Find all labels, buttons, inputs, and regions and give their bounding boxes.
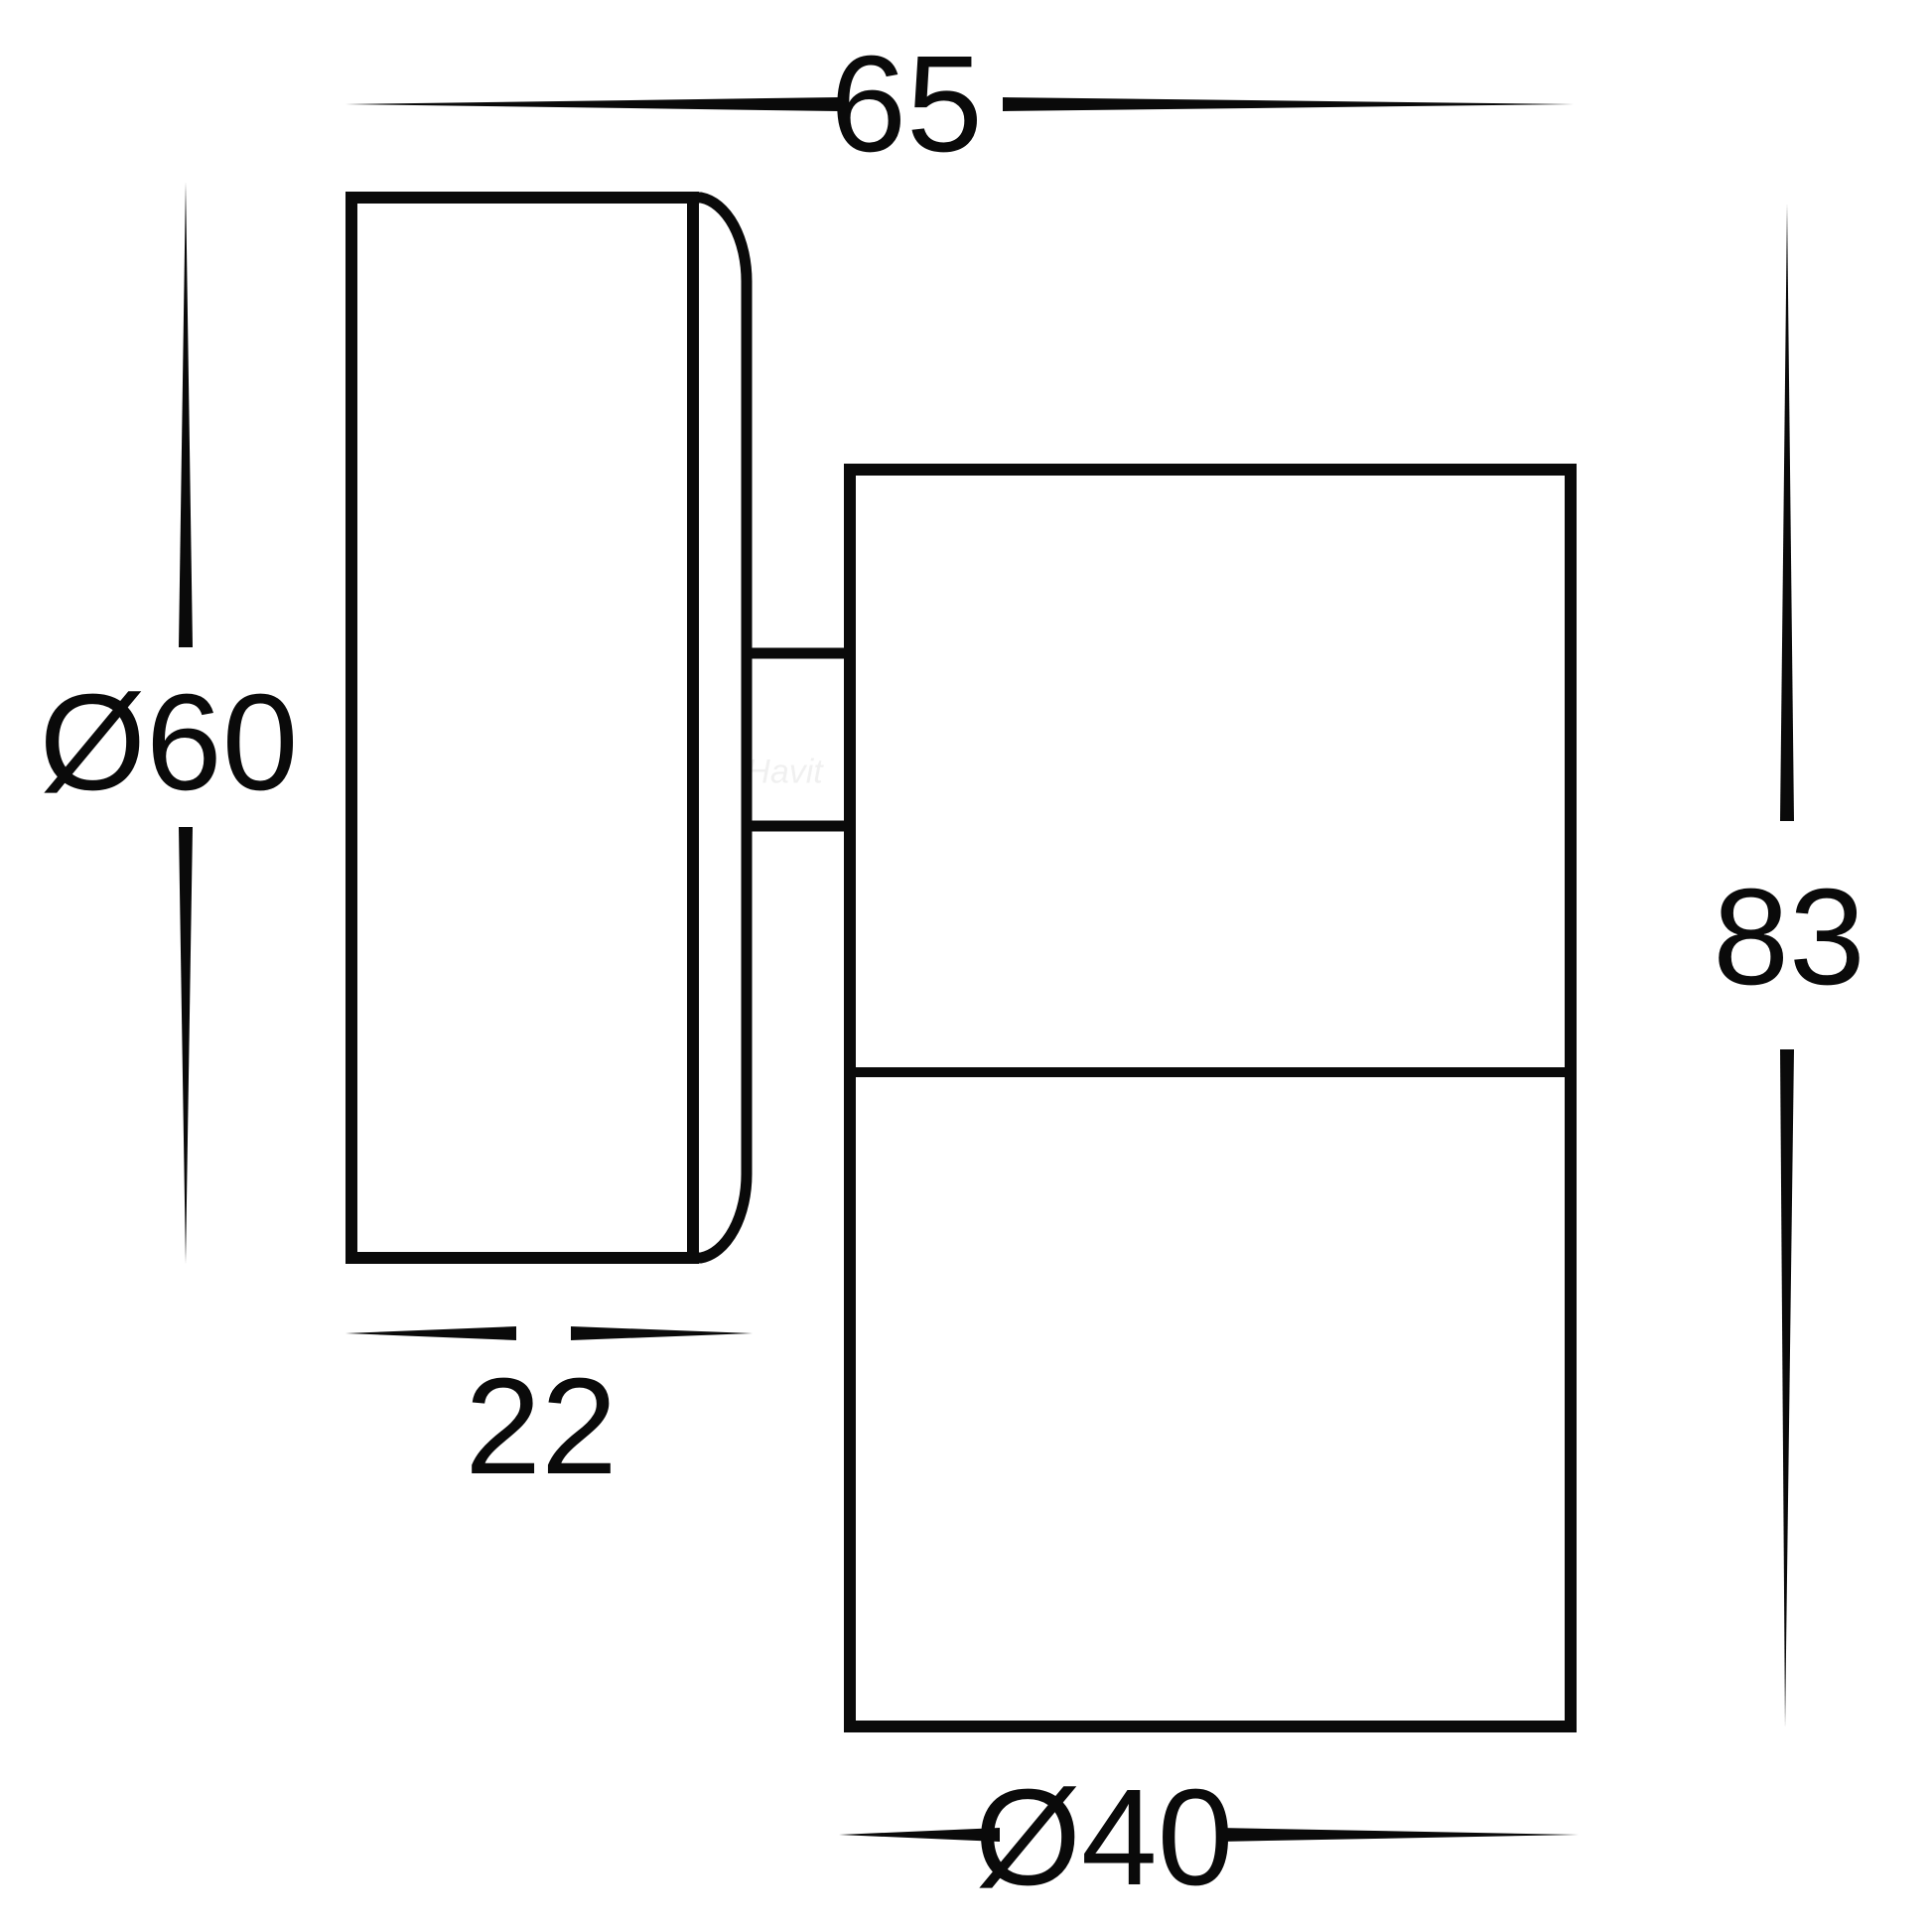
drawing-layer [0,0,1932,1932]
brand-watermark: Havit [746,754,822,792]
technical-drawing-canvas: 65 Ø60 83 22 Ø40 Havit [0,0,1932,1932]
lamp-body-outline [850,470,1571,1726]
dim-label-body-height: 83 [1713,869,1865,1006]
dim-left-upper-arrow [179,182,193,647]
dim-plate-depth-left-arrow [345,1326,516,1340]
dim-right-upper-arrow [1780,204,1794,821]
dim-right-lower-arrow [1780,1049,1794,1727]
dim-label-body-diameter: Ø40 [975,1769,1234,1906]
dim-bottom-right-arrow [1218,1828,1579,1842]
dim-label-plate-depth: 22 [465,1358,618,1495]
dim-plate-depth-right-arrow [571,1326,753,1340]
dim-left-lower-arrow [179,827,193,1264]
dim-label-plate-diameter: Ø60 [40,674,299,811]
backplate-outline [351,198,693,1258]
dim-top-right-arrow [1003,97,1574,111]
dim-top-left-arrow [345,97,839,111]
dim-label-top-width: 65 [830,36,983,173]
